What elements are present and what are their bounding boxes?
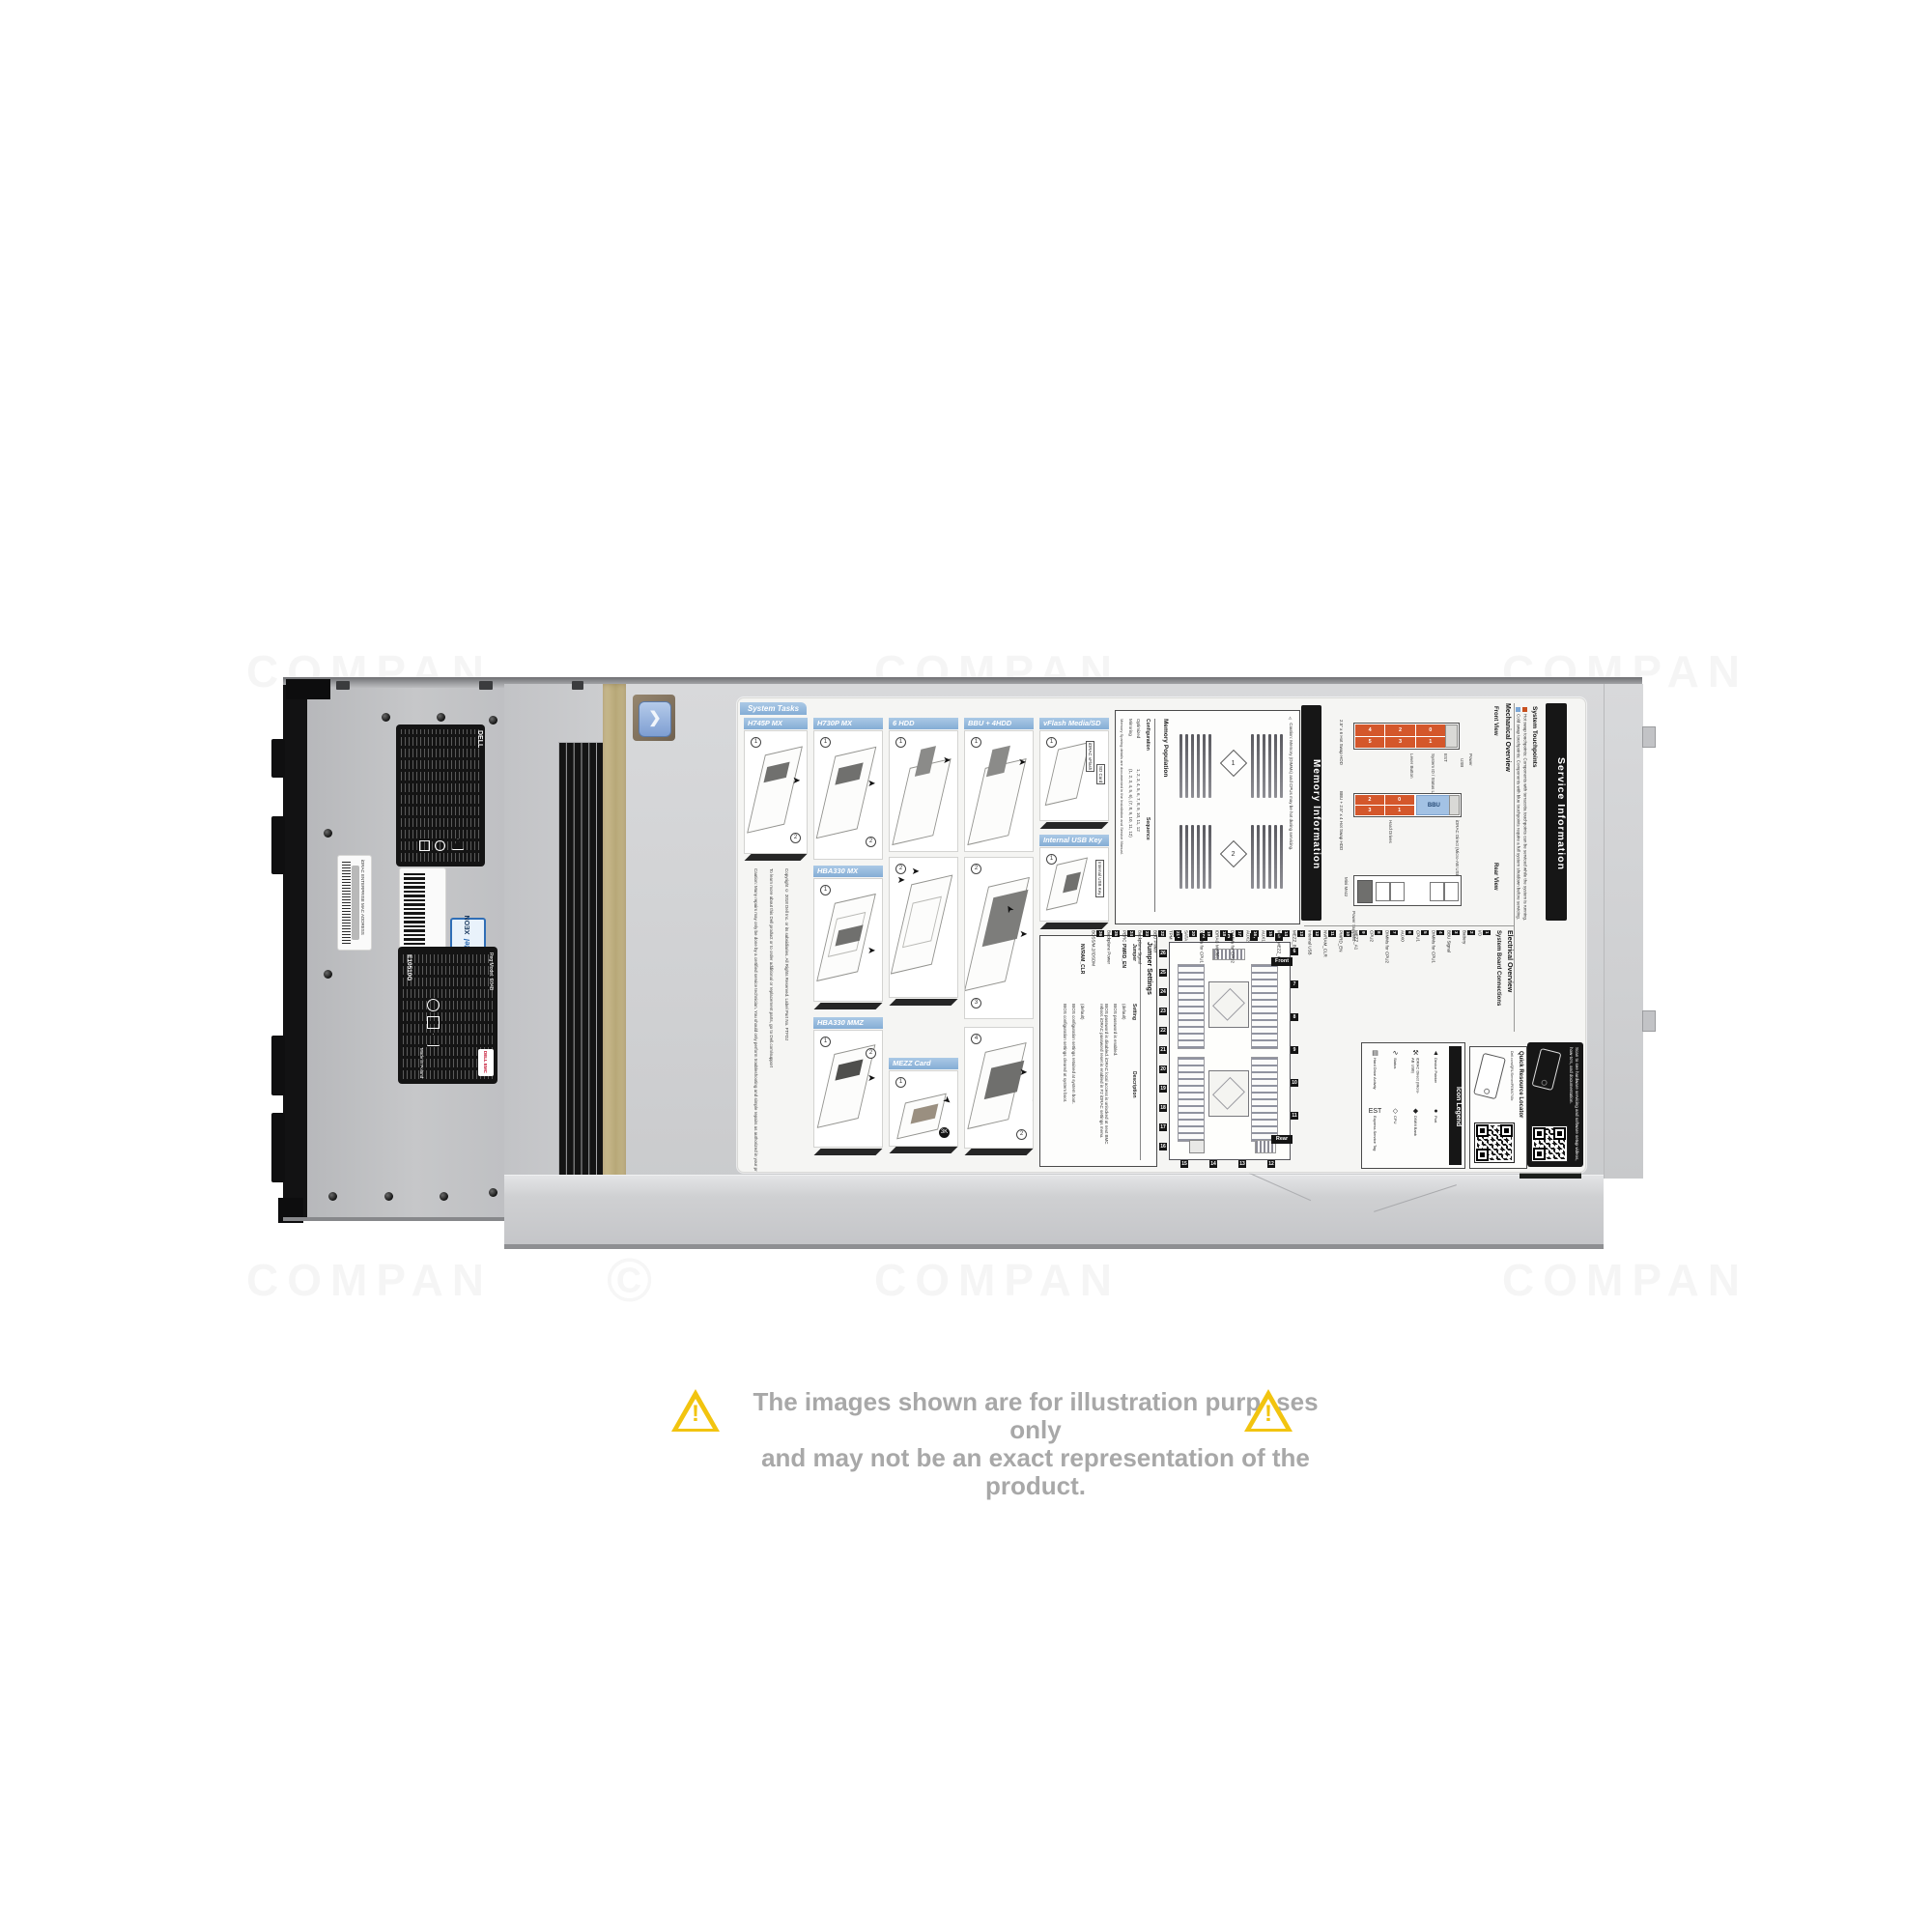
memory-caution-text: ⚠ Caution: Memory (DIMMs) and CPUs may b…	[1289, 717, 1293, 850]
task-illustration: ➤➤42	[964, 1027, 1034, 1149]
chevron-right-icon: ❯	[648, 710, 661, 726]
legend-item: ∿ Status	[1386, 1049, 1405, 1105]
task-illustration: ➤12	[813, 1030, 883, 1148]
screw	[328, 1192, 337, 1201]
panel-header: H730P MX	[813, 718, 883, 729]
panel-shadow	[814, 1149, 883, 1155]
bbu-block: BBU	[1416, 795, 1452, 815]
board-callout-16: 16	[1159, 1143, 1167, 1151]
icon-legend-box: Icon Legend ▤ Hard Drive Activity ∿ Stat…	[1361, 1042, 1465, 1169]
qrl-title: Quick Resource Locator	[1518, 1051, 1523, 1118]
panel-header: 6 HDD	[889, 718, 958, 729]
rear-tag: Rear	[1271, 1135, 1293, 1144]
usb-callout: USB	[1459, 758, 1464, 767]
screw	[437, 713, 445, 722]
qrl-qr-code	[1474, 1122, 1515, 1163]
dimm-slots-cpu1-a	[1179, 734, 1211, 798]
task-illustration: ➤12	[813, 730, 883, 860]
panel-header: vFlash Media/SD Card	[1039, 718, 1109, 729]
legend-item: ◆ DIMM Bank	[1406, 1107, 1425, 1163]
task-illustration: ➤➤23	[964, 857, 1034, 1019]
electrical-overview-title: Electrical Overview	[1506, 930, 1513, 992]
panel-header: HBA330 MX	[813, 866, 883, 877]
made-in-text: Made in Poland	[419, 1048, 424, 1078]
rear-view-diagram	[1353, 875, 1462, 906]
reg-number-text: E10510G	[406, 954, 412, 980]
board-callout-20: 20	[1159, 1065, 1167, 1073]
panel-shadow	[745, 854, 808, 861]
mac-barcode	[342, 862, 351, 944]
memory-sparing-note: Memory Sparing details are documented in…	[1120, 719, 1124, 855]
board-callout-14: 14	[1209, 1160, 1217, 1168]
task-illustration: ➤➤2	[889, 857, 958, 998]
screw	[384, 1192, 393, 1201]
divider	[1304, 925, 1515, 926]
cpu-icon: ◇	[1393, 1107, 1398, 1116]
screw	[440, 1192, 448, 1201]
system-tasks-tab: System Tasks	[740, 702, 807, 715]
jumper-row2-default: (default)	[1080, 1004, 1085, 1020]
reg-model-text: Reg Model: E04B	[488, 952, 494, 990]
board-callout-11: 11	[1291, 1112, 1298, 1120]
screw	[382, 713, 390, 722]
jumper-row2-desc: BIOS configuration settings retained at …	[1071, 1004, 1076, 1104]
rear-connector	[271, 739, 285, 778]
front-view-title: Front View	[1492, 706, 1498, 736]
mechanical-overview-title: Mechanical Overview	[1504, 703, 1511, 772]
dimm-slots-cpu1-b	[1251, 734, 1283, 798]
idrac-vflash-callout: iDRAC vFlash	[1086, 741, 1094, 772]
cert-mark-icon	[419, 840, 430, 851]
task-illustration: 1 Internal USB Key	[1039, 847, 1109, 922]
disclaimer-line2: and may not be an exact representation o…	[736, 1444, 1335, 1500]
divider	[1514, 703, 1515, 1032]
sd-card-callout: SD Card	[1096, 764, 1105, 784]
qrl-box: Quick Resource Locator Dell.com/QRL/Serv…	[1469, 1046, 1527, 1169]
rear-connector	[271, 1113, 285, 1182]
legend-item: ⚒ iDRAC Direct (Micro-AB USB)	[1406, 1049, 1425, 1105]
board-callout-21: 21	[1159, 1046, 1167, 1054]
rail-tab	[1642, 1010, 1656, 1032]
board-callout-18: 18	[1159, 1104, 1167, 1112]
panel-header: Internal USB Key	[1039, 835, 1109, 846]
panel-shadow	[1040, 822, 1109, 829]
task-illustration: ➤1	[889, 730, 958, 852]
phone-illustration	[1473, 1053, 1506, 1099]
memory-row-mirroring-seq: (1, 2, 3, 4, 5, 6), (7, 8, 9, 10, 11, 12…	[1128, 769, 1133, 838]
memory-sequence-header: Sequence	[1145, 817, 1151, 840]
bay4-diagram: 2 0 3 1 BBU	[1353, 793, 1462, 817]
hard-drive-activity-icon: ▤	[1372, 1049, 1378, 1058]
cert-mark-icon	[427, 999, 440, 1011]
task-illustration: ➤1	[964, 730, 1034, 852]
dimm-slots-cpu2-b	[1251, 825, 1283, 889]
memory-row-mirroring: Mirroring	[1128, 719, 1133, 736]
panel-shadow	[814, 1003, 883, 1009]
idrac-mac-text: iDRAC ENTERPRISE MAC ADDRESS	[360, 860, 365, 935]
service-information-header: Service Information	[1546, 703, 1567, 921]
screw	[489, 716, 497, 724]
cold-swap-text: Cold swap touchpoints: Components with b…	[1516, 706, 1521, 920]
task-illustration: 1 iDRAC vFlash SD Card	[1039, 730, 1109, 821]
legend-item: ▲ Device Pointer	[1427, 1049, 1445, 1105]
legend-item: ● Port	[1427, 1107, 1445, 1163]
dimm-slots-cpu2-a	[1179, 825, 1211, 889]
rail-tab	[1642, 726, 1656, 748]
board-callout-13: 13	[1238, 1160, 1246, 1168]
warning-triangle-icon: !	[1244, 1389, 1293, 1432]
chassis-left-edge	[283, 685, 307, 1221]
cpu2-socket	[1208, 1070, 1249, 1117]
memory-population-box: ⚠ Caution: Memory (DIMMs) and CPUs may b…	[1115, 710, 1300, 924]
rear-view-title: Rear View	[1492, 863, 1498, 891]
jumper-row2-name: NVRAM_CLR	[1079, 944, 1085, 974]
corner-block-top-left	[286, 679, 330, 699]
emi-gasket-strip	[603, 684, 626, 1249]
memory-config-header: Configuration	[1145, 719, 1151, 751]
xeon-text: XEON	[465, 916, 471, 935]
tasks-caution-text: Caution: Many repairs may only be done b…	[752, 868, 758, 1173]
idrac-direct-callout: iDRAC Direct (Micro-AB USB)	[1450, 820, 1460, 878]
server-sled: ❯ DELL 253RQX2 iDRAC ENTERPRISE MAC ADDR…	[0, 0, 1932, 1932]
phone-illustration	[1531, 1048, 1561, 1091]
regulatory-label-bottom: E10510G Reg Model: E04B Made in Poland D…	[398, 947, 497, 1084]
jumper-row2-desc-alt: BIOS configuration settings cleared at s…	[1063, 1004, 1067, 1102]
icon-legend-items: ▤ Hard Drive Activity ∿ Status ⚒ iDRAC D…	[1366, 1049, 1445, 1162]
chassis-bottom-edge	[504, 1244, 1604, 1249]
mac-redacted	[352, 866, 359, 940]
chassis-side-fold	[504, 1175, 1604, 1247]
rear-connector	[271, 816, 285, 874]
board-connections-list: 1I/O 2Battery 3BBU Signal 4DIMMs for CPU…	[1306, 930, 1492, 1029]
cert-mark-icon	[427, 1016, 440, 1029]
intel-xeon-badge: intel XEON	[450, 918, 486, 950]
panel-shadow	[1040, 923, 1109, 929]
tasks-support-text: To learn more about this Dell product or…	[767, 868, 774, 1067]
rear-connector	[271, 1036, 285, 1095]
port-icon: ●	[1434, 1107, 1437, 1116]
panel-shadow	[890, 999, 958, 1006]
qrl-url: Dell.com/QRL/Server/PEMX740c	[1510, 1051, 1514, 1101]
scan-box: Scan to see hardware servicing and softw…	[1527, 1042, 1583, 1167]
top-clip	[336, 681, 350, 690]
screw	[489, 1188, 497, 1197]
board-callout-19: 19	[1159, 1085, 1167, 1093]
cpu2-diamond-icon: 2	[1220, 840, 1247, 867]
service-tag-text: 253RQX2	[443, 873, 446, 941]
dimm-bank-icon: ◆	[1413, 1107, 1418, 1116]
memory-row-optimized: Optimized	[1136, 719, 1141, 738]
memory-information-header: Memory Information	[1301, 705, 1321, 921]
bay6-diagram: 4 2 0 5 3 1	[1353, 723, 1460, 750]
board-callout-9: 9	[1291, 1046, 1298, 1054]
memory-population-title: Memory Population	[1162, 719, 1169, 777]
vent-grid	[558, 742, 605, 1200]
hard-drives-callout: Hard Drives	[1387, 820, 1393, 843]
cpu1-diamond-icon: 1	[1220, 750, 1247, 777]
lever-button-callout: Lever Button	[1408, 753, 1414, 779]
panel-header: MEZZ Card	[889, 1058, 958, 1069]
legend-item: ◇ CPU	[1386, 1107, 1405, 1163]
hot-swap-swatch	[1522, 707, 1527, 712]
legend-item: ▤ Hard Drive Activity	[1366, 1049, 1384, 1105]
service-tag-label: 253RQX2	[399, 867, 446, 951]
panel-header: BBU + 4HDD	[964, 718, 1034, 729]
service-information-label: System Tasks H745P MX ➤12 Caution: Many …	[737, 697, 1586, 1173]
chassis-rear-bottom-edge	[283, 1217, 504, 1221]
warning-triangle-icon: !	[671, 1389, 720, 1432]
chassis-right-end	[1604, 684, 1643, 1179]
idrac-direct-icon: ⚒	[1412, 1049, 1418, 1058]
tasks-copyright-text: Copyright © 2018 Dell Inc. or its subsid…	[782, 868, 789, 1040]
brand-text: DELL	[476, 730, 483, 748]
scan-qr-code	[1531, 1125, 1568, 1162]
system-board-connections-title: System Board Connections	[1495, 930, 1501, 1006]
hot-swap-text: Hot swap touchpoints: Components with te…	[1522, 706, 1528, 921]
est-callout: EST	[1442, 753, 1448, 762]
task-illustration: ➤13K	[889, 1070, 958, 1147]
description-col: Description	[1131, 1071, 1137, 1098]
memory-row-optimized-seq: 1, 2, 3, 4, 5, 6, 7, 8, 9, 10, 11, 12	[1136, 769, 1141, 832]
dell-emc-text: DELL EMC	[483, 1051, 488, 1073]
system-touchpoints-title: System Touchpoints	[1531, 706, 1538, 767]
screw	[324, 970, 332, 979]
top-clip	[572, 681, 583, 690]
mini-mezz-callout: Mini Mezz	[1343, 877, 1349, 896]
bay4-label: BBU + 2.5" x 4 Hot Swap HDD	[1339, 791, 1344, 850]
device-pointer-icon: ▲	[1433, 1049, 1439, 1058]
idrac-mac-label: iDRAC ENTERPRISE MAC ADDRESS	[337, 855, 372, 951]
power-callout: Power	[1467, 753, 1473, 766]
board-callout-15: 15	[1180, 1160, 1188, 1168]
cold-swap-swatch	[1516, 707, 1520, 712]
product-photo: COMPAN COMPAN COMPAN COMPAN COMPAN COMPA…	[0, 0, 1932, 1932]
status-icon: ∿	[1393, 1049, 1399, 1058]
latch-release-button[interactable]: ❯	[639, 701, 671, 737]
top-clip	[479, 681, 493, 690]
est-icon: EST	[1369, 1107, 1382, 1116]
task-illustration: ➤1	[813, 878, 883, 1002]
bay6-label: 2.5" x 6 Hot Swap HDD	[1339, 720, 1344, 765]
regulatory-label-top: DELL	[396, 724, 485, 867]
dell-emc-box: DELL EMC	[478, 1049, 494, 1076]
cert-mark-icon	[435, 840, 445, 851]
panel-shadow	[890, 1147, 958, 1153]
usb-key-callout: Internal USB Key	[1095, 860, 1104, 897]
task-illustration: ➤12	[744, 730, 808, 854]
service-tag-barcode	[404, 873, 425, 945]
board-callout-10: 10	[1291, 1079, 1298, 1087]
legend-item: EST Express Service Tag	[1366, 1107, 1384, 1163]
icon-legend-title: Icon Legend	[1449, 1046, 1462, 1165]
panel-header: H745P MX	[744, 718, 808, 729]
panel-header: HBA330 MMZ	[813, 1017, 883, 1029]
board-callout-12: 12	[1267, 1160, 1275, 1168]
panel-shadow	[965, 1149, 1034, 1155]
board-callout-17: 17	[1159, 1123, 1167, 1131]
screw	[324, 829, 332, 838]
